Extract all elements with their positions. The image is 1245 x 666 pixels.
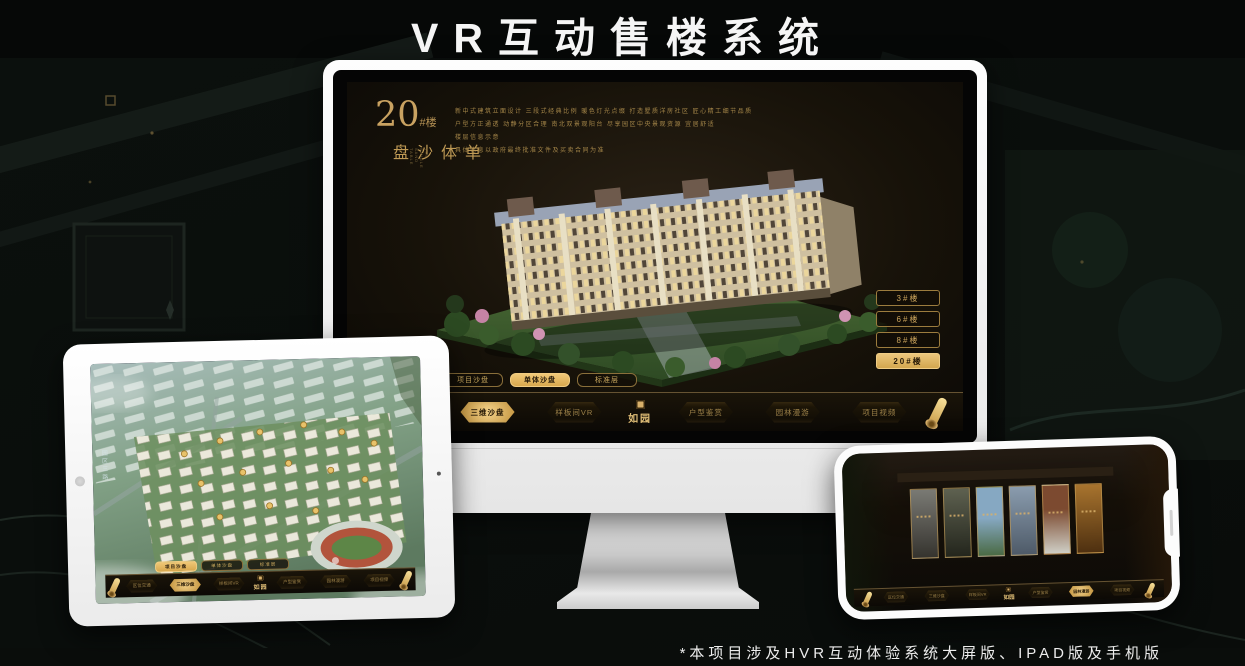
nav-item-3d-sandtable[interactable]: 三维沙盘 <box>455 402 521 423</box>
street-label: 园区三路 <box>99 450 109 482</box>
nav-item-floorplan[interactable]: 户型鉴赏 <box>673 402 739 423</box>
tab-single-sandtable[interactable]: 单体沙盘 <box>201 559 243 571</box>
nav-item-garden-roam[interactable]: 园林漫游 <box>316 574 354 588</box>
brand-logo: 如园 <box>1003 586 1014 600</box>
panorama-card[interactable] <box>910 488 939 559</box>
nav-item-floorplan[interactable]: 户型鉴赏 <box>273 575 311 589</box>
page-title: VR互动售楼系统 <box>0 4 1245 64</box>
panorama-card[interactable] <box>976 486 1005 557</box>
phone-mockup: 区位交通 三维沙盘 样板间VR 如园 户型鉴赏 园林漫游 项目视频 <box>833 436 1180 621</box>
panorama-card-list <box>910 483 1104 559</box>
nav-item-project-video[interactable]: 项目视频 <box>360 573 398 587</box>
description-line: 新中式建筑立面设计 三段式经典比例 暖色灯光点缀 打造墅质洋房社区 匠心精工细节… <box>455 106 845 119</box>
brand-logo-text: 如园 <box>253 582 267 591</box>
tablet-camera-icon <box>437 472 441 476</box>
scroll-ornament-icon <box>1145 582 1155 597</box>
tab-standard-floor[interactable]: 标准层 <box>247 558 289 570</box>
brand-logo-text: 如园 <box>1003 592 1014 600</box>
footnote-text: *本项目涉及HVR互动体验系统大屏版、IPAD版及手机版 <box>680 642 1163 663</box>
floor-button-8[interactable]: 8#楼 <box>876 332 940 348</box>
seal-icon <box>1006 586 1011 591</box>
panorama-card[interactable] <box>1042 484 1071 555</box>
tablet-home-button[interactable] <box>75 476 85 486</box>
nav-item-3d-sandtable[interactable]: 三维沙盘 <box>166 578 204 592</box>
seal-icon <box>636 400 645 409</box>
building-headline: 20#楼 单体沙盘 THE SINGLE SAND TABLE <box>375 98 437 132</box>
speaker-icon <box>1170 510 1174 536</box>
nav-item-3d-sandtable[interactable]: 三维沙盘 <box>922 590 952 602</box>
seal-icon <box>257 575 263 581</box>
phone-notch <box>1163 489 1180 557</box>
building-number: 20 <box>375 95 420 135</box>
panorama-card[interactable] <box>943 487 972 558</box>
tab-project-sandtable[interactable]: 项目沙盘 <box>155 561 197 573</box>
brand-logo: 如园 <box>628 400 652 425</box>
panorama-card[interactable] <box>1075 483 1104 554</box>
scroll-ornament-icon <box>400 570 413 589</box>
nav-item-garden-roam[interactable]: 园林漫游 <box>1066 585 1096 597</box>
nav-item-location[interactable]: 区位交通 <box>881 591 911 603</box>
tab-single-sandtable[interactable]: 单体沙盘 <box>510 373 570 387</box>
floor-button-6[interactable]: 6#楼 <box>876 311 940 327</box>
tab-standard-floor[interactable]: 标准层 <box>577 373 637 387</box>
phone-app-screen: 区位交通 三维沙盘 样板间VR 如园 户型鉴赏 园林漫游 项目视频 <box>842 444 1173 612</box>
nav-item-garden-roam[interactable]: 园林漫游 <box>760 402 826 423</box>
scroll-ornament-icon <box>108 577 121 596</box>
nav-item-location[interactable]: 区位交通 <box>123 579 161 593</box>
nav-item-showroom-vr[interactable]: 样板间VR <box>541 402 607 423</box>
tablet-app-screen: 园区三路 项目沙盘 单体沙盘 标准层 区位交通 三维沙盘 样板间VR 如园 户型… <box>90 356 426 604</box>
brand-logo-text: 如园 <box>628 410 652 425</box>
nav-item-showroom-vr[interactable]: 样板间VR <box>210 577 248 591</box>
tablet-mockup: 园区三路 项目沙盘 单体沙盘 标准层 区位交通 三维沙盘 样板间VR 如园 户型… <box>63 335 456 626</box>
description-line: 户型方正通透 动静分区合理 南北双景观阳台 尽享园区中央景观资源 宜居舒适 <box>455 119 845 132</box>
building-3d-view[interactable] <box>417 140 897 390</box>
scroll-ornament-icon <box>862 591 872 606</box>
scroll-ornament-icon <box>927 397 948 428</box>
floor-button-group: 3#楼 6#楼 8#楼 20#楼 <box>876 290 940 369</box>
nav-item-project-video[interactable]: 项目视频 <box>1107 584 1137 596</box>
phone-bottom-nav: 区位交通 三维沙盘 样板间VR 如园 户型鉴赏 园林漫游 项目视频 <box>854 579 1164 607</box>
building-number-suffix: #楼 <box>420 117 437 129</box>
panorama-card[interactable] <box>1009 485 1038 556</box>
brand-logo: 如园 <box>253 575 267 591</box>
nav-item-showroom-vr[interactable]: 样板间VR <box>962 588 992 600</box>
floor-button-3[interactable]: 3#楼 <box>876 290 940 306</box>
phone-scene-roof <box>898 466 1113 482</box>
tab-project-sandtable[interactable]: 项目沙盘 <box>443 373 503 387</box>
view-tab-group: 项目沙盘 单体沙盘 标准层 <box>443 373 637 387</box>
nav-item-floorplan[interactable]: 户型鉴赏 <box>1025 587 1055 599</box>
nav-item-project-video[interactable]: 项目视频 <box>846 402 912 423</box>
floor-button-20[interactable]: 20#楼 <box>876 353 940 369</box>
